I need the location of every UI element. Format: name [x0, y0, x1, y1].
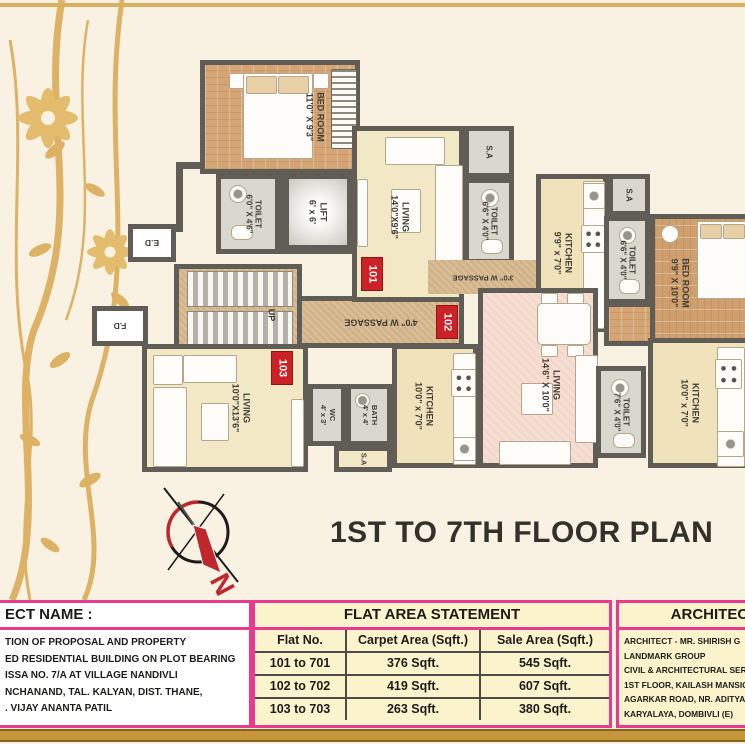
- room-dims: 11'0" X 9'3": [305, 93, 315, 141]
- floor-plan-sheet: BED ROOM11'0" X 9'3" E.D F.D TOILET6'0" …: [0, 0, 745, 744]
- room-label: LIVING: [241, 393, 251, 423]
- coffee-table: [201, 403, 229, 441]
- flat-badge-101: 101: [361, 257, 383, 291]
- armchair: [153, 355, 183, 385]
- col-sale-area: Sale Area (Sqft.): [481, 630, 609, 651]
- chair: [541, 345, 558, 357]
- room-kitchen-102: KITCHEN10'0" x 7'0": [392, 344, 478, 468]
- room-dims: 9'9" X 10'0": [670, 258, 680, 307]
- project-line: ISSA NO. 7/A AT VILLAGE NANDIVLI: [5, 668, 247, 685]
- nightstand: [313, 73, 329, 89]
- room-dims: 4' x 4': [361, 405, 370, 425]
- room-label: BATH: [370, 405, 379, 425]
- room-toilet-102-upper: TOILET6'6" X 4'0": [464, 178, 514, 264]
- architect-line: LANDMARK GROUP: [624, 649, 745, 664]
- project-name-header: ECT NAME :: [0, 603, 249, 630]
- room-toilet-101: TOILET6'0" X 4'6": [216, 174, 280, 254]
- sa-label: S.A: [624, 188, 633, 201]
- duct-label: E.D: [145, 238, 159, 248]
- room-kitchen-right: KITCHEN10'0" x 7'0": [648, 338, 745, 468]
- flat-area-statement-panel: FLAT AREA STATEMENT Flat No. Carpet Area…: [252, 600, 612, 728]
- room-label: TOILET: [254, 200, 263, 228]
- staircase: UP: [174, 264, 302, 350]
- project-line: TION OF PROPOSAL AND PROPERTY: [5, 635, 247, 652]
- architect-line: KARYALAYA, DOMBIVLI (E): [624, 707, 745, 722]
- room-living-103: LIVING10'0"X13'6" 103: [142, 344, 308, 472]
- stove-icon: [451, 369, 476, 397]
- sa-label: S.A: [359, 453, 368, 466]
- room-living-102: LIVING14'6" X 10'0": [478, 288, 598, 468]
- page-title: 1ST TO 7TH FLOOR PLAN: [330, 516, 690, 556]
- room-bedroom-right: BED ROOM9'9" X 10'0": [650, 214, 745, 346]
- stair-flight: [187, 311, 293, 345]
- stove-icon: [715, 359, 742, 389]
- dining-table: [537, 303, 591, 345]
- north-compass-icon: N: [158, 486, 248, 596]
- room-label: TOILET: [621, 398, 630, 426]
- sink-icon: [583, 183, 605, 209]
- wall-segment: [176, 162, 183, 232]
- sofa: [183, 355, 237, 383]
- room-dims: 10'0" x 7'0": [414, 382, 424, 430]
- room-dims: 14'6" X 10'0": [541, 358, 551, 412]
- room-dims: 6'6" X 4'0": [480, 202, 489, 241]
- sofa: [435, 165, 463, 269]
- col-flat-no: Flat No.: [255, 630, 347, 651]
- bed: [697, 221, 745, 299]
- passage-label: 3'0" W PASSAGE: [452, 273, 513, 282]
- stove-icon: [581, 225, 605, 253]
- sofa: [153, 387, 187, 467]
- architect-header: ARCHITECT: [619, 603, 745, 630]
- flat-area-header: FLAT AREA STATEMENT: [255, 603, 609, 630]
- room-dims: 6' x 6': [308, 200, 318, 224]
- tv-unit: [357, 179, 368, 247]
- passage-label: 4'0" W PASSAGE: [344, 317, 417, 328]
- room-label: KITCHEN: [690, 383, 700, 423]
- duct-ed: E.D: [128, 224, 176, 262]
- duct-fd: F.D: [92, 306, 148, 346]
- room-dims: 7'6" X 4'0": [612, 393, 621, 432]
- room-dims: 9'9" x 7'0": [553, 232, 563, 275]
- sofa: [575, 355, 598, 443]
- room-label: TOILET: [489, 207, 498, 235]
- room-dims: 6'6" X 4'0": [618, 241, 627, 280]
- room-label: BED ROOM: [681, 258, 691, 308]
- service-area-103: S.A: [334, 446, 392, 472]
- room-wc-103: WC4' x 3': [308, 384, 346, 446]
- room-bedroom-101: BED ROOM11'0" X 9'3": [200, 60, 360, 174]
- tv-unit: [291, 399, 304, 467]
- room-dims: 6'0" X 4'6": [244, 195, 253, 234]
- table-row: 102 to 702 419 Sqft. 607 Sqft.: [255, 676, 609, 699]
- stairs-up-label: UP: [266, 308, 277, 321]
- sink-icon: [453, 437, 476, 461]
- table-row: 101 to 701 376 Sqft. 545 Sqft.: [255, 653, 609, 676]
- service-area-top: S.A: [464, 126, 514, 178]
- pillow: [723, 224, 745, 239]
- bed: [243, 73, 313, 159]
- wc-icon: [481, 239, 503, 254]
- room-dims: 10'0" x 7'0": [680, 379, 690, 427]
- room-dims: 4' x 3': [319, 405, 328, 425]
- architect-line: ARCHITECT - MR. SHIRISH G: [624, 634, 745, 649]
- room-dims: 10'0"X13'6": [231, 384, 241, 433]
- room-label: BED ROOM: [315, 92, 325, 142]
- room-dims: 14'0"X9'6": [390, 195, 400, 239]
- room-label: LIVING: [400, 202, 410, 232]
- ceiling-fan-icon: [661, 225, 679, 243]
- flat-badge-103: 103: [271, 351, 293, 385]
- room-label: KITCHEN: [425, 386, 435, 426]
- table-header-row: Flat No. Carpet Area (Sqft.) Sale Area (…: [255, 630, 609, 653]
- north-label: N: [204, 568, 241, 596]
- room-label: KITCHEN: [564, 233, 574, 273]
- project-line: ED RESIDENTIAL BUILDING ON PLOT BEARING: [5, 652, 247, 669]
- room-label: WC: [328, 409, 337, 422]
- project-name-panel: ECT NAME : TION OF PROPOSAL AND PROPERTY…: [0, 600, 252, 728]
- room-toilet-right: TOILET6'6" X 4'0": [604, 216, 650, 304]
- wc-icon: [613, 433, 635, 448]
- duct-label: F.D: [114, 321, 127, 331]
- table-row: 103 to 703 263 Sqft. 380 Sqft.: [255, 699, 609, 720]
- bottom-gold-band: [0, 729, 745, 742]
- architect-line: 1ST FLOOR, KAILASH MANSION,: [624, 678, 745, 693]
- sa-label: S.A: [484, 145, 493, 158]
- room-label: TOILET: [627, 246, 636, 274]
- pillow: [700, 224, 722, 239]
- pillow: [246, 76, 277, 94]
- sink-icon: [717, 431, 744, 457]
- architect-panel: ARCHITECT ARCHITECT - MR. SHIRISH G LAND…: [616, 600, 745, 728]
- lift: LIFT6' x 6': [280, 170, 356, 254]
- wc-icon: [619, 279, 640, 294]
- room-bath-103: BATH4' x 4': [346, 384, 392, 446]
- sofa: [499, 441, 571, 465]
- service-area-right: S.A: [608, 174, 650, 216]
- col-carpet-area: Carpet Area (Sqft.): [347, 630, 481, 651]
- flat-badge-102: 102: [436, 305, 458, 339]
- room-label: LIFT: [319, 203, 329, 222]
- room-label: LIVING: [552, 370, 562, 400]
- passage-4ft: 4'0" W PASSAGE 102: [302, 296, 464, 348]
- architect-line: CIVIL & ARCHITECTURAL SERVIC: [624, 663, 745, 678]
- project-line: . VIJAY ANANTA PATIL: [5, 701, 247, 718]
- sofa: [385, 137, 445, 165]
- architect-line: AGARKAR ROAD, NR. ADITYA MA: [624, 692, 745, 707]
- project-line: NCHANAND, TAL. KALYAN, DIST. THANE,: [5, 685, 247, 702]
- stair-flight: [187, 271, 293, 307]
- room-toilet-102-lower: TOILET7'6" X 4'0": [596, 366, 646, 458]
